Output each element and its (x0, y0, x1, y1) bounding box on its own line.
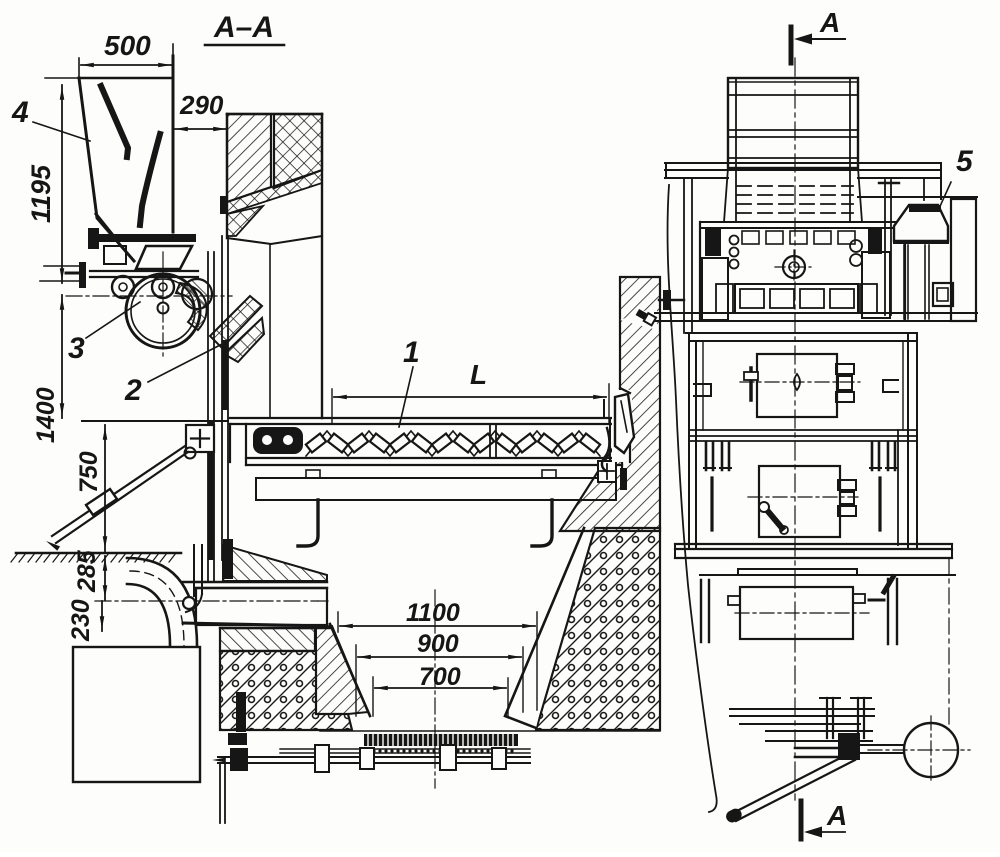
svg-text:L: L (470, 359, 487, 390)
svg-text:1100: 1100 (406, 599, 460, 627)
svg-text:1: 1 (403, 336, 420, 369)
svg-text:700: 700 (419, 663, 461, 691)
svg-text:A: A (826, 800, 847, 831)
svg-text:1195: 1195 (26, 164, 56, 223)
svg-text:A: A (819, 7, 840, 38)
svg-text:1400: 1400 (32, 387, 60, 443)
svg-text:230: 230 (67, 599, 95, 642)
svg-text:750: 750 (75, 451, 103, 493)
svg-text:500: 500 (104, 30, 151, 61)
svg-text:3: 3 (68, 332, 85, 365)
svg-text:900: 900 (417, 630, 459, 658)
svg-text:A–A: A–A (213, 11, 274, 44)
svg-text:5: 5 (956, 145, 974, 178)
svg-text:285: 285 (73, 549, 101, 593)
svg-text:4: 4 (11, 96, 29, 129)
svg-text:2: 2 (124, 374, 142, 407)
svg-text:290: 290 (179, 90, 224, 120)
